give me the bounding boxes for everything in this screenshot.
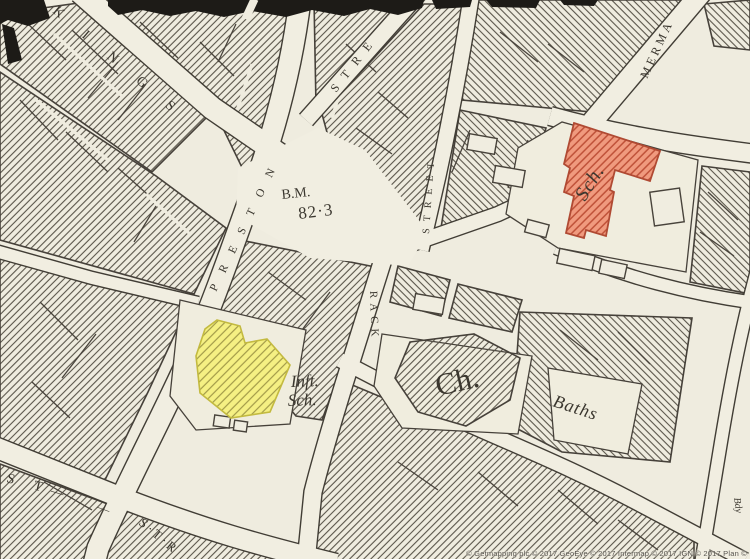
infant-school-label-line2: Sch. xyxy=(287,390,316,410)
benchmark-abbr: B.M. xyxy=(281,185,311,203)
boundary-label: Bdy xyxy=(731,497,744,514)
attribution-text: © Getmapping plc © 2017 GeoEye © 2017 In… xyxy=(466,549,747,558)
infant-school-label-line1: Inft. xyxy=(289,371,319,391)
historical-map-canvas[interactable]: Sch. KINGS PRESTON STRE STREET RACK MERM… xyxy=(0,0,750,559)
map-svg[interactable]: Sch. KINGS PRESTON STRE STREET RACK MERM… xyxy=(0,0,750,559)
rack-street-label: RACK xyxy=(367,291,381,342)
